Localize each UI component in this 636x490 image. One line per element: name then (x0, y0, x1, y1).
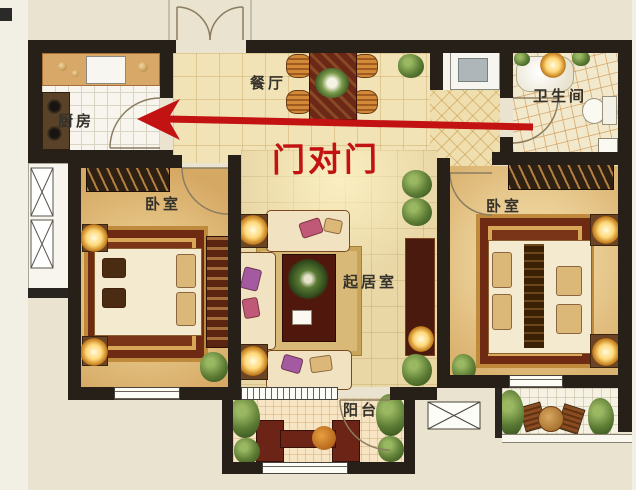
red-annotation-arrow (0, 0, 636, 490)
floor-plan-canvas: { "plan": { "type": "apartment-floor-pla… (0, 0, 636, 490)
annotation-text: 门对门 (272, 133, 380, 182)
